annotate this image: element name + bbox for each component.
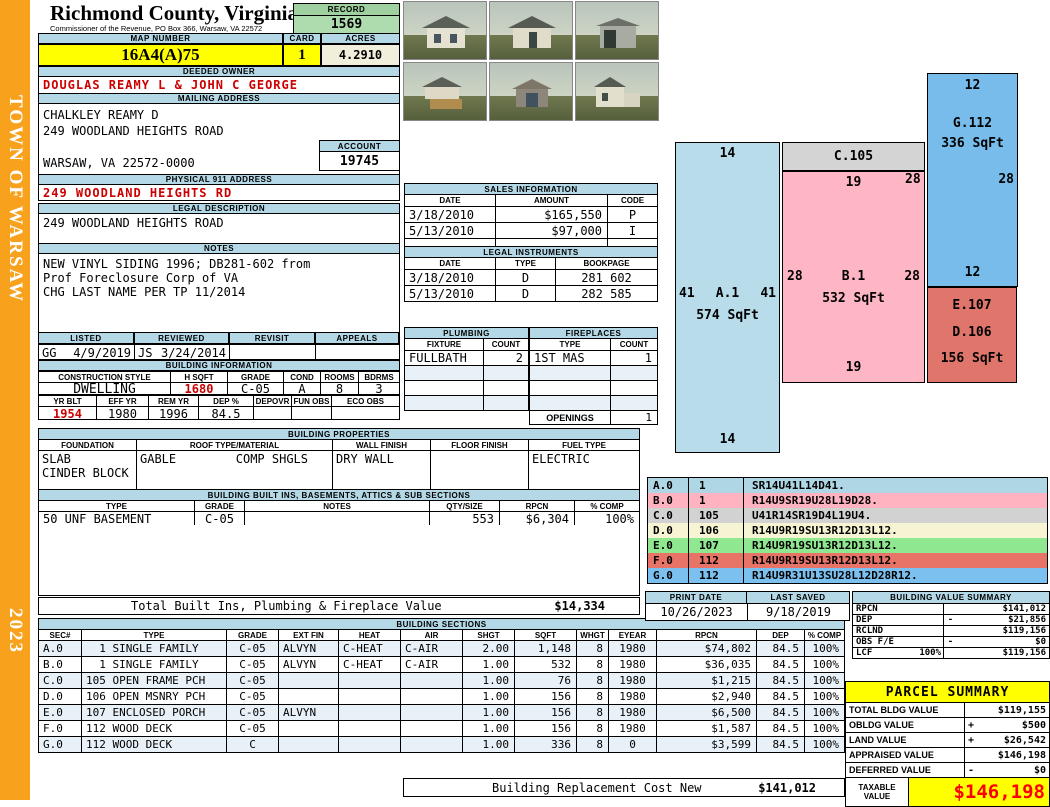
table-cell-extfin [278,689,338,704]
table-cell-ftype: 1ST MAS [530,351,610,365]
sketch-section-C: C.105 [782,142,925,171]
table-cell-sqft: 156 [514,721,576,736]
building-sections: BUILDING SECTIONS SEC#TYPEGRADEEXT FINHE… [38,618,845,753]
table-row: C.0105 OPEN FRAME PCHC-051.007681980$1,2… [39,672,844,688]
column-header: % COMP [574,501,639,511]
listed-by: GG [42,346,56,360]
fireplaces-rows: 1ST MAS1 [530,351,657,410]
table-row: F.0112R14U9R19SU13R12D13L12. [648,553,1047,568]
table-cell-sqft: 336 [514,737,576,752]
table-cell-extfin: ALVYN [278,705,338,720]
column-header: HEAT [338,630,400,640]
record-number: 1569 [294,16,399,33]
table-cell-grade: C-05 [226,641,278,656]
table-cell-count: 1 [610,351,657,365]
account-number: 19745 [320,152,399,170]
table-cell-pct [915,637,943,647]
table-cell-yrblt: 1954 [39,407,96,420]
table-cell-count: 2 [483,351,528,365]
builtins-title: BUILDING BUILT INS, BASEMENTS, ATTICS & … [39,490,639,501]
table-cell-label: LCF [853,648,915,658]
table-cell-whgt: 8 [576,705,608,720]
table-cell-ftype [530,396,610,410]
table-cell-sign: + [964,718,980,732]
sketch-section-area: 156 SqFt [928,351,1016,366]
property-photo[interactable] [489,62,573,121]
plumbing-table: PLUMBING FIXTURECOUNT FULLBATH2 [404,327,529,411]
table-cell-label: TOTAL BLDG VALUE [846,703,964,717]
dim-label: 12 [928,265,1017,280]
table-cell-lnum: 106 [688,523,743,538]
table-cell-ftype [530,366,610,380]
table-cell-type2: D [495,286,555,301]
dim-label: 28 [998,172,1014,187]
table-cell-count [483,396,528,410]
table-cell-comp: 100% [804,721,844,736]
table-cell-count [483,381,528,395]
revisit-label: REVISIT [229,333,315,344]
openings-row: OPENINGS 1 [530,410,657,424]
column-header: WHGT [576,630,608,640]
table-cell-lcode: A.0 [648,478,688,493]
sales-title: SALES INFORMATION [405,184,657,195]
roof-type: GABLE [140,452,176,466]
table-cell-dep: 84.5 [756,641,804,656]
table-cell-fixture [405,366,483,380]
sketch-section-name: D.106 [928,325,1016,340]
table-row: OBS F/E-$0 [853,636,1049,647]
table-cell-qty: 553 [429,512,499,525]
table-cell-pct: 100% [915,648,943,658]
property-photo[interactable] [575,1,659,60]
table-cell-date: 5/13/2010 [405,223,495,238]
column-header: CODE [607,195,657,206]
map-card-acres: MAP NUMBER CARD ACRES 16A4(A)75 1 4.2910 [38,33,400,66]
table-cell-dep: 84.5 [756,721,804,736]
town-name-vertical: TOWN OF WARSAW [4,95,26,303]
legal-instruments-rows: 3/18/2010D281 6025/13/2010D282 585 [405,270,657,301]
sketch-section-name: G.112 [928,116,1017,131]
table-cell-whgt: 8 [576,721,608,736]
legal-instruments-title: LEGAL INSTRUMENTS [405,247,657,258]
physical-address-value: 249 WOODLAND HEIGHTS RD [38,185,400,201]
reviewed-cell: JS3/24/2014 [134,345,229,360]
column-header: % COMP [804,630,844,640]
photo-strip [403,1,661,121]
table-row [405,395,528,410]
table-cell-sec: D.0 [39,689,81,704]
table-cell-rpcn: $36,035 [656,657,756,672]
column-header: EYEAR [608,630,656,640]
table-cell-pct [915,615,943,625]
table-cell-book: 282 585 [555,286,657,301]
table-cell-count [610,381,657,395]
table-cell-label: DEP [853,615,915,625]
table-cell-amount: $119,156 [957,626,1049,636]
table-cell-eyear: 1980 [608,657,656,672]
table-row: A.01SR14U41L14D41. [648,478,1047,493]
table-cell-sec: A.0 [39,641,81,656]
table-cell-air [400,673,462,688]
table-row: 5/13/2010D282 585 [405,285,657,301]
taxable-label: TAXABLE VALUE [846,778,908,806]
property-photo[interactable] [489,1,573,60]
notes-line: CHG LAST NAME PER TP 11/2014 [43,285,399,299]
reviewed-by: JS [138,346,152,360]
revisit-cell [229,345,315,360]
card-label: CARD [283,33,321,44]
table-cell-air: C-AIR [400,641,462,656]
table-cell-date: 5/13/2010 [405,286,495,301]
table-cell-sqft: 156 [514,689,576,704]
table-cell-cond: A [283,383,320,395]
account-label: ACCOUNT [320,141,399,152]
table-cell-grade: C-05 [194,512,244,525]
table-cell-type: 106 OPEN MSNRY PCH [81,689,226,704]
table-cell-whgt: 8 [576,737,608,752]
table-cell-comp: 100% [804,641,844,656]
column-header: NOTES [244,501,429,511]
table-row: B.01R14U9SR19U28L19D28. [648,493,1047,508]
parcel-summary: PARCEL SUMMARY TOTAL BLDG VALUE$119,155O… [845,681,1050,807]
table-cell-grade: C-05 [226,689,278,704]
table-row: D.0106 OPEN MSNRY PCHC-051.0015681980$2,… [39,688,844,704]
table-cell-sqft: 76 [514,673,576,688]
sketch-section-name: C.105 [783,149,924,164]
table-cell-comp: 100% [804,737,844,752]
sketch-section-area: 574 SqFt [676,308,779,323]
table-cell-dep: 84.5 [756,657,804,672]
table-cell-dep: 84.5 [756,737,804,752]
table-cell-eyear: 1980 [608,705,656,720]
last-saved-value: 9/18/2019 [747,604,849,620]
sketch-section-B: 19 28 B.1 28 532 SqFt 19 [782,171,925,383]
table-cell-sign [964,748,980,762]
table-cell-rpcn: $1,215 [656,673,756,688]
table-cell-amount: $0 [980,763,1049,777]
table-cell-eyear: 1980 [608,641,656,656]
table-cell-lcode: B.0 [648,493,688,508]
table-cell-book: 281 602 [555,270,657,285]
table-cell-fixture [405,381,483,395]
table-row: DEFERRED VALUE-$0 [846,762,1049,777]
table-row: B.0 1 SINGLE FAMILYC-05ALVYNC-HEATC-AIR1… [39,656,844,672]
table-row: APPRAISED VALUE$146,198 [846,747,1049,762]
table-cell-vector: R14U9R19SU13R12D13L12. [743,538,1049,553]
notes-block: NEW VINYL SIDING 1996; DB281-602 from Pr… [38,254,400,332]
column-header: REM YR [148,396,198,406]
table-cell-sec: C.0 [39,673,81,688]
table-cell-heat [338,737,400,752]
table-cell-amount: $97,000 [495,223,607,238]
table-cell-sqft: 532 [514,657,576,672]
table-cell-whgt: 8 [576,641,608,656]
column-header: H SQFT [170,372,227,382]
property-photo[interactable] [403,62,487,121]
builtins-total-value: $14,334 [554,599,605,613]
table-cell-sqft: 156 [514,705,576,720]
table-row [405,365,528,380]
column-header: BOOKPAGE [555,258,657,269]
column-header: DEP % [198,396,253,406]
table-cell-heat [338,721,400,736]
sketch-section-area: 532 SqFt [783,291,924,306]
column-header: EFF YR [96,396,148,406]
column-header: TYPE [495,258,555,269]
listed-cell: GG4/9/2019 [39,345,134,360]
column-header: FIXTURE [405,339,483,350]
column-header: GRADE [226,630,278,640]
table-cell-grade: C-05 [226,673,278,688]
column-header: SHGT [462,630,514,640]
table-cell-label: OBS F/E [853,637,915,647]
sketch-section-ED: E.107 D.106 156 SqFt [927,287,1017,383]
column-header: SQFT [514,630,576,640]
fireplaces-headers: TYPECOUNT [530,339,657,351]
dim-label: 19 [783,175,924,190]
rcn-value: $141,012 [758,781,816,795]
table-cell-extfin: ALVYN [278,657,338,672]
column-header: TYPE [39,501,194,511]
table-cell-lnum: 107 [688,538,743,553]
column-header: COUNT [610,339,657,350]
table-cell-bdrms: 3 [358,383,399,395]
parcel-summary-title: PARCEL SUMMARY [846,682,1049,703]
table-cell-air: C-AIR [400,657,462,672]
table-row: RPCN$141,012 [853,604,1049,614]
table-cell-count [483,366,528,380]
table-cell-heat: C-HEAT [338,657,400,672]
acres-value: 4.2910 [321,44,400,66]
table-cell-rpcn: $1,587 [656,721,756,736]
table-cell-label: OBLDG VALUE [846,718,964,732]
acres-label: ACRES [321,33,400,44]
table-cell-shgt: 1.00 [462,657,514,672]
roof-value: GABLE COMP SHGLS [136,451,332,491]
column-header: FUN OBS [291,396,331,406]
table-cell-type: 105 OPEN FRAME PCH [81,673,226,688]
table-cell-ecoobs [331,407,399,420]
sketch-legend: A.01SR14U41L14D41.B.01R14U9SR19U28L19D28… [647,477,1048,584]
table-row [530,365,657,380]
table-row [405,380,528,395]
column-header: WALL FINISH [332,440,430,450]
physical-address-label: PHYSICAL 911 ADDRESS [38,174,400,185]
table-row: 19541980199684.5 [39,407,399,420]
table-cell-dep: 84.5 [756,673,804,688]
sketch-section-name: B.1 [783,269,924,284]
table-cell-hsqft: 1680 [170,383,227,395]
table-cell-comp: 100% [804,705,844,720]
column-header: DEP [756,630,804,640]
table-row: C.0105U41R14SR19D4L19U4. [648,508,1047,523]
column-header: FUEL TYPE [528,440,639,450]
building-sections-rows: A.0 1 SINGLE FAMILYC-05ALVYNC-HEATC-AIR2… [39,641,844,752]
table-row: OBLDG VALUE+$500 [846,717,1049,732]
table-cell-amount: $21,856 [957,615,1049,625]
dim-label: 19 [783,360,924,375]
table-cell-amount: $165,550 [495,207,607,222]
table-cell-notes [244,512,429,525]
table-cell-lnum: 112 [688,568,743,583]
listed-label: LISTED [39,333,134,344]
commissioner-line: Commissioner of the Revenue, PO Box 366,… [50,24,262,33]
table-cell-comp: 100% [804,673,844,688]
table-row: LAND VALUE+$26,542 [846,732,1049,747]
table-cell-rpcn: $6,304 [499,512,574,525]
table-cell-amount: $141,012 [957,604,1049,614]
table-cell-label: LAND VALUE [846,733,964,747]
table-cell-eyear: 0 [608,737,656,752]
table-cell-sec: F.0 [39,721,81,736]
table-cell-lcode: F.0 [648,553,688,568]
table-cell-rooms: 8 [320,383,358,395]
map-number-value: 16A4(A)75 [38,44,283,66]
table-cell-whgt: 8 [576,673,608,688]
property-photo[interactable] [575,62,659,121]
builtins-total-label: Total Built Ins, Plumbing & Fireplace Va… [131,599,442,613]
table-cell-shgt: 1.00 [462,705,514,720]
table-cell-amount: $146,198 [980,748,1049,762]
column-header: COND [283,372,320,382]
floor-finish-value [430,451,528,491]
table-cell-ftype [530,381,610,395]
column-header: DEPOVR [253,396,291,406]
column-header: TYPE [530,339,610,350]
record-label: RECORD [294,4,399,16]
building-info-table-1: CONSTRUCTION STYLEH SQFTGRADECONDROOMSBD… [38,371,400,395]
table-row [530,395,657,410]
foundation-value: SLAB CINDER BLOCK [39,451,136,491]
notes-line: Prof Foreclosure Corp of VA [43,271,399,285]
table-cell-whgt: 8 [576,657,608,672]
column-header: COUNT [483,339,528,350]
table-cell-type: 107 ENCLOSED PORCH [81,705,226,720]
table-cell-sign: - [943,637,957,647]
notes-line: NEW VINYL SIDING 1996; DB281-602 from [43,257,399,271]
openings-label: OPENINGS [530,411,610,424]
column-header: QTY/SIZE [429,501,499,511]
table-cell-air [400,721,462,736]
builtins-rows: 50 UNF BASEMENTC-05553$6,304100% [39,512,639,525]
building-properties: BUILDING PROPERTIES FOUNDATIONROOF TYPE/… [38,428,640,492]
dim-label: 28 [905,172,921,187]
table-cell-vector: R14U9R19SU13R12D13L12. [743,553,1049,568]
table-cell-air [400,689,462,704]
table-cell-pct [915,604,943,614]
table-cell-comp: 100% [804,657,844,672]
table-cell-sign [964,703,980,717]
column-header: RPCN [656,630,756,640]
sketch-section-name: E.107 [928,298,1016,313]
sales-information: SALES INFORMATION DATEAMOUNTCODE 3/18/20… [404,183,658,255]
parcel-summary-rows: TOTAL BLDG VALUE$119,155OBLDG VALUE+$500… [846,703,1049,777]
table-cell-amount: $0 [957,637,1049,647]
taxable-value: $146,198 [908,778,1049,806]
appeals-label: APPEALS [315,333,399,344]
table-cell-shgt: 1.00 [462,673,514,688]
card-value: 1 [283,44,321,66]
table-cell-whgt: 8 [576,689,608,704]
table-row: 1ST MAS1 [530,351,657,365]
county-title: Richmond County, Virginia [50,1,298,26]
table-row: TOTAL BLDG VALUE$119,155 [846,703,1049,717]
table-cell-style: DWELLING [39,383,170,395]
table-cell-depovr [253,407,291,420]
mailing-line: 249 WOODLAND HEIGHTS ROAD [43,123,399,139]
table-cell-grade: C-05 [227,383,283,395]
table-cell-sign: + [964,733,980,747]
table-cell-funobs [291,407,331,420]
plumbing-rows: FULLBATH2 [405,351,528,410]
table-cell-date: 3/18/2010 [405,207,495,222]
sales-headers: DATEAMOUNTCODE [405,195,657,207]
table-cell-shgt: 1.00 [462,737,514,752]
table-cell-dep: 84.5 [756,689,804,704]
fireplaces-table: FIREPLACES TYPECOUNT 1ST MAS1 OPENINGS 1 [529,327,658,425]
rcn-row: Building Replacement Cost New $141,012 [403,778,845,797]
plumbing-title: PLUMBING [405,328,528,339]
table-cell-lnum: 105 [688,508,743,523]
table-cell-type: 112 WOOD DECK [81,721,226,736]
appeals-cell [315,345,399,360]
town-sidebar: TOWN OF WARSAW 2023 [0,0,30,800]
deeded-owner-value: DOUGLAS REAMY L & JOHN C GEORGE [38,77,400,93]
table-cell-lnum: 1 [688,478,743,493]
table-row: LCF100%$119,156 [853,647,1049,658]
table-cell-fixture: FULLBATH [405,351,483,365]
table-cell-fixture [405,396,483,410]
table-cell-extfin [278,673,338,688]
building-value-summary: BUILDING VALUE SUMMARY RPCN$141,012DEP-$… [852,591,1050,659]
table-cell-type: 1 SINGLE FAMILY [81,657,226,672]
column-header: ROOMS [320,372,358,382]
building-value-summary-rows: RPCN$141,012DEP-$21,856RCLND$119,156OBS … [853,604,1049,658]
builtins-total-row: Total Built Ins, Plumbing & Fireplace Va… [38,597,640,615]
legend-rows: A.01SR14U41L14D41.B.01R14U9SR19U28L19D28… [648,478,1047,583]
table-cell-grade: C-05 [226,721,278,736]
property-photo[interactable] [403,1,487,60]
column-header: GRADE [194,501,244,511]
table-cell-effyr: 1980 [96,407,148,420]
table-cell-comp: 100% [574,512,639,525]
table-cell-heat [338,705,400,720]
table-row: A.0 1 SINGLE FAMILYC-05ALVYNC-HEATC-AIR2… [39,641,844,656]
account-box: ACCOUNT 19745 [319,140,400,171]
table-row: 5/13/2010$97,000I [405,222,657,238]
review-table: LISTED REVIEWED REVISIT APPEALS GG4/9/20… [38,332,400,360]
column-header: GRADE [227,372,283,382]
table-cell-lnum: 1 [688,493,743,508]
table-row: DEP-$21,856 [853,614,1049,625]
table-row: D.0106R14U9R19SU13R12D13L12. [648,523,1047,538]
sketch-section-area: 336 SqFt [928,136,1017,151]
table-cell-shgt: 1.00 [462,721,514,736]
column-header: BDRMS [358,372,399,382]
building-properties-headers: FOUNDATIONROOF TYPE/MATERIALWALL FINISHF… [39,440,639,451]
table-row: E.0107R14U9R19SU13R12D13L12. [648,538,1047,553]
building-info-headers-2: YR BLTEFF YRREM YRDEP %DEPOVRFUN OBSECO … [39,396,399,407]
wall-finish-value: DRY WALL [332,451,430,491]
table-row: E.0107 ENCLOSED PORCHC-05ALVYN1.00156819… [39,704,844,720]
table-cell-lcode: E.0 [648,538,688,553]
building-value-summary-title: BUILDING VALUE SUMMARY [853,592,1049,604]
county-header: Richmond County, Virginia Commissioner o… [38,0,400,33]
fireplaces-title: FIREPLACES [530,328,657,339]
table-cell-grade: C [226,737,278,752]
table-cell-air [400,737,462,752]
column-header: FLOOR FINISH [430,440,528,450]
